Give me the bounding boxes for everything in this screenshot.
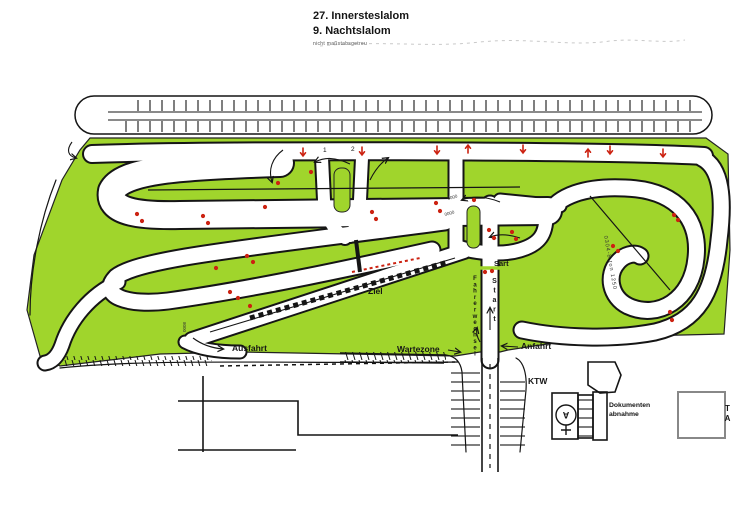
- track-map: Ausfahrt Wartezone Anfahrt Ziel Sart KTW…: [0, 0, 739, 520]
- label-ktw: KTW: [528, 376, 548, 386]
- label-ziel: Ziel: [368, 286, 383, 296]
- label-ta: TA: [723, 404, 731, 424]
- label-fahrerwechsel: Fahrerwechsel: [472, 276, 478, 358]
- label-dokumenten-1: Dokumenten: [609, 402, 650, 409]
- ta-building: [678, 392, 725, 438]
- label-wartezone: Wartezone: [397, 344, 440, 354]
- scale-note: nicht maßstabsgetreu: [313, 41, 409, 47]
- event-title-2: 9. Nachtslalom: [313, 25, 409, 37]
- event-title-1: 27. Innersteslalom: [313, 10, 409, 22]
- track-map-page: Ausfahrt Wartezone Anfahrt Ziel Sart KTW…: [0, 0, 739, 520]
- paddock-entry-arrow: [69, 142, 76, 158]
- anfahrt-lane: [500, 358, 526, 452]
- label-start-vertical: Start: [491, 278, 498, 326]
- aid-symbol-letter: A: [562, 410, 569, 420]
- title-block: 27. Innersteslalom 9. Nachtslalom nicht …: [313, 10, 409, 47]
- distance-mark-1: 0008: [182, 321, 187, 332]
- label-gate-2: 2: [351, 146, 355, 153]
- pit-street: [482, 358, 498, 472]
- label-anfahrt: Anfahrt: [521, 341, 551, 351]
- label-sart: Sart: [494, 259, 509, 268]
- label-dokumenten-2: abnahme: [609, 411, 639, 418]
- label-gate-1: 1: [323, 147, 327, 154]
- wartezone-lane: [340, 352, 480, 452]
- aid-strip: [578, 395, 593, 438]
- label-ausfahrt: Ausfahrt: [232, 343, 267, 353]
